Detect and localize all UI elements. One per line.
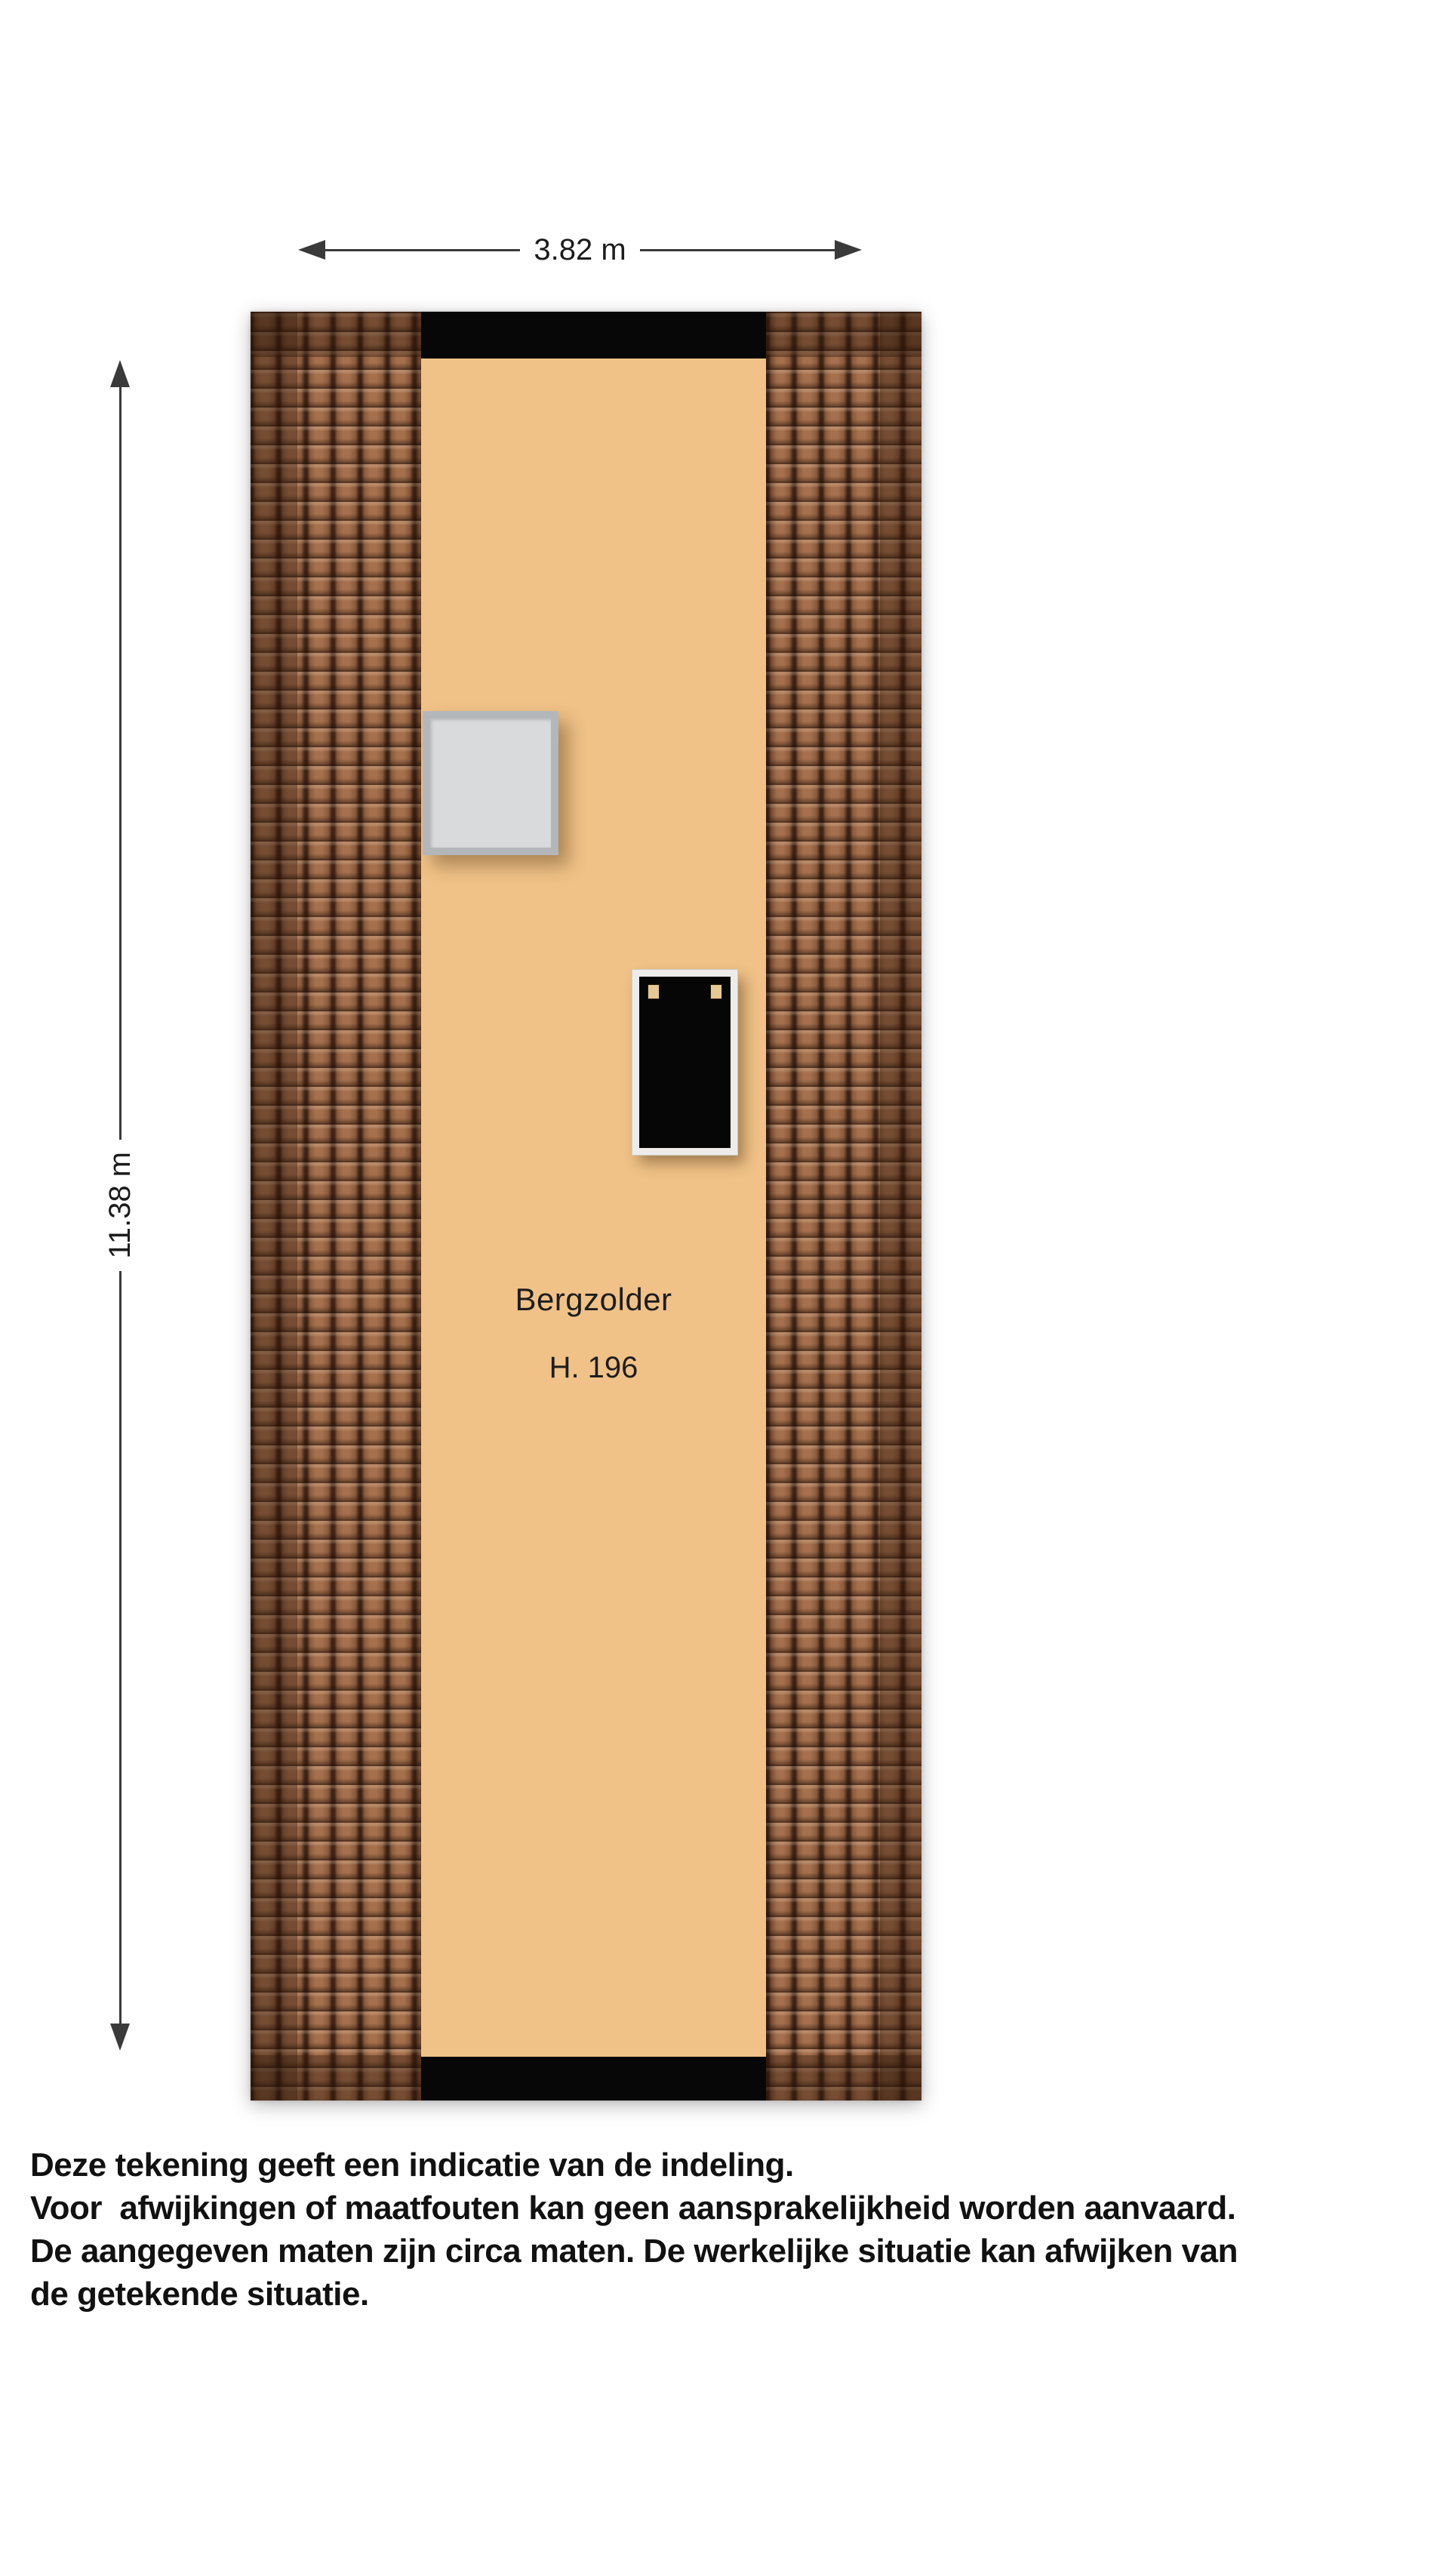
page: 3.82 m 11.38 m Bergzolder H. 196 Deze te bbox=[0, 0, 1449, 2576]
hinge-icon bbox=[711, 985, 721, 999]
roof-tiles-right bbox=[766, 312, 921, 2101]
top-wall bbox=[421, 312, 766, 359]
skylight-window bbox=[423, 711, 558, 855]
skylight-glass bbox=[430, 719, 551, 848]
disclaimer-line: Deze tekening geeft een indicatie van de… bbox=[30, 2144, 1441, 2187]
attic-floor: Bergzolder H. 196 bbox=[421, 312, 766, 2101]
height-dimension-label: 11.38 m bbox=[103, 1152, 137, 1259]
width-dimension: 3.82 m bbox=[298, 232, 862, 267]
width-dimension-label: 3.82 m bbox=[534, 233, 626, 267]
disclaimer: Deze tekening geeft een indicatie van de… bbox=[30, 2144, 1441, 2316]
dimension-line bbox=[119, 1271, 122, 2024]
arrow-left-icon bbox=[298, 240, 325, 260]
room-name-label: Bergzolder bbox=[421, 1282, 766, 1318]
hinge-icon bbox=[648, 985, 659, 999]
roof-window bbox=[632, 970, 737, 1155]
arrow-right-icon bbox=[835, 240, 862, 260]
height-dimension: 11.38 m bbox=[100, 360, 140, 2051]
bottom-wall bbox=[421, 2057, 766, 2101]
arrow-up-icon bbox=[110, 360, 130, 387]
arrow-down-icon bbox=[110, 2024, 130, 2051]
roof-tiles-left bbox=[251, 312, 421, 2101]
dimension-line bbox=[640, 249, 835, 251]
disclaimer-line: de getekende situatie. bbox=[30, 2273, 1441, 2316]
room-height-label: H. 196 bbox=[421, 1351, 766, 1385]
dimension-line bbox=[325, 249, 520, 251]
floorplan: Bergzolder H. 196 bbox=[251, 312, 921, 2101]
disclaimer-line: Voor afwijkingen of maatfouten kan geen … bbox=[30, 2187, 1441, 2230]
disclaimer-line: De aangegeven maten zijn circa maten. De… bbox=[30, 2230, 1441, 2273]
dimension-line bbox=[119, 387, 122, 1140]
